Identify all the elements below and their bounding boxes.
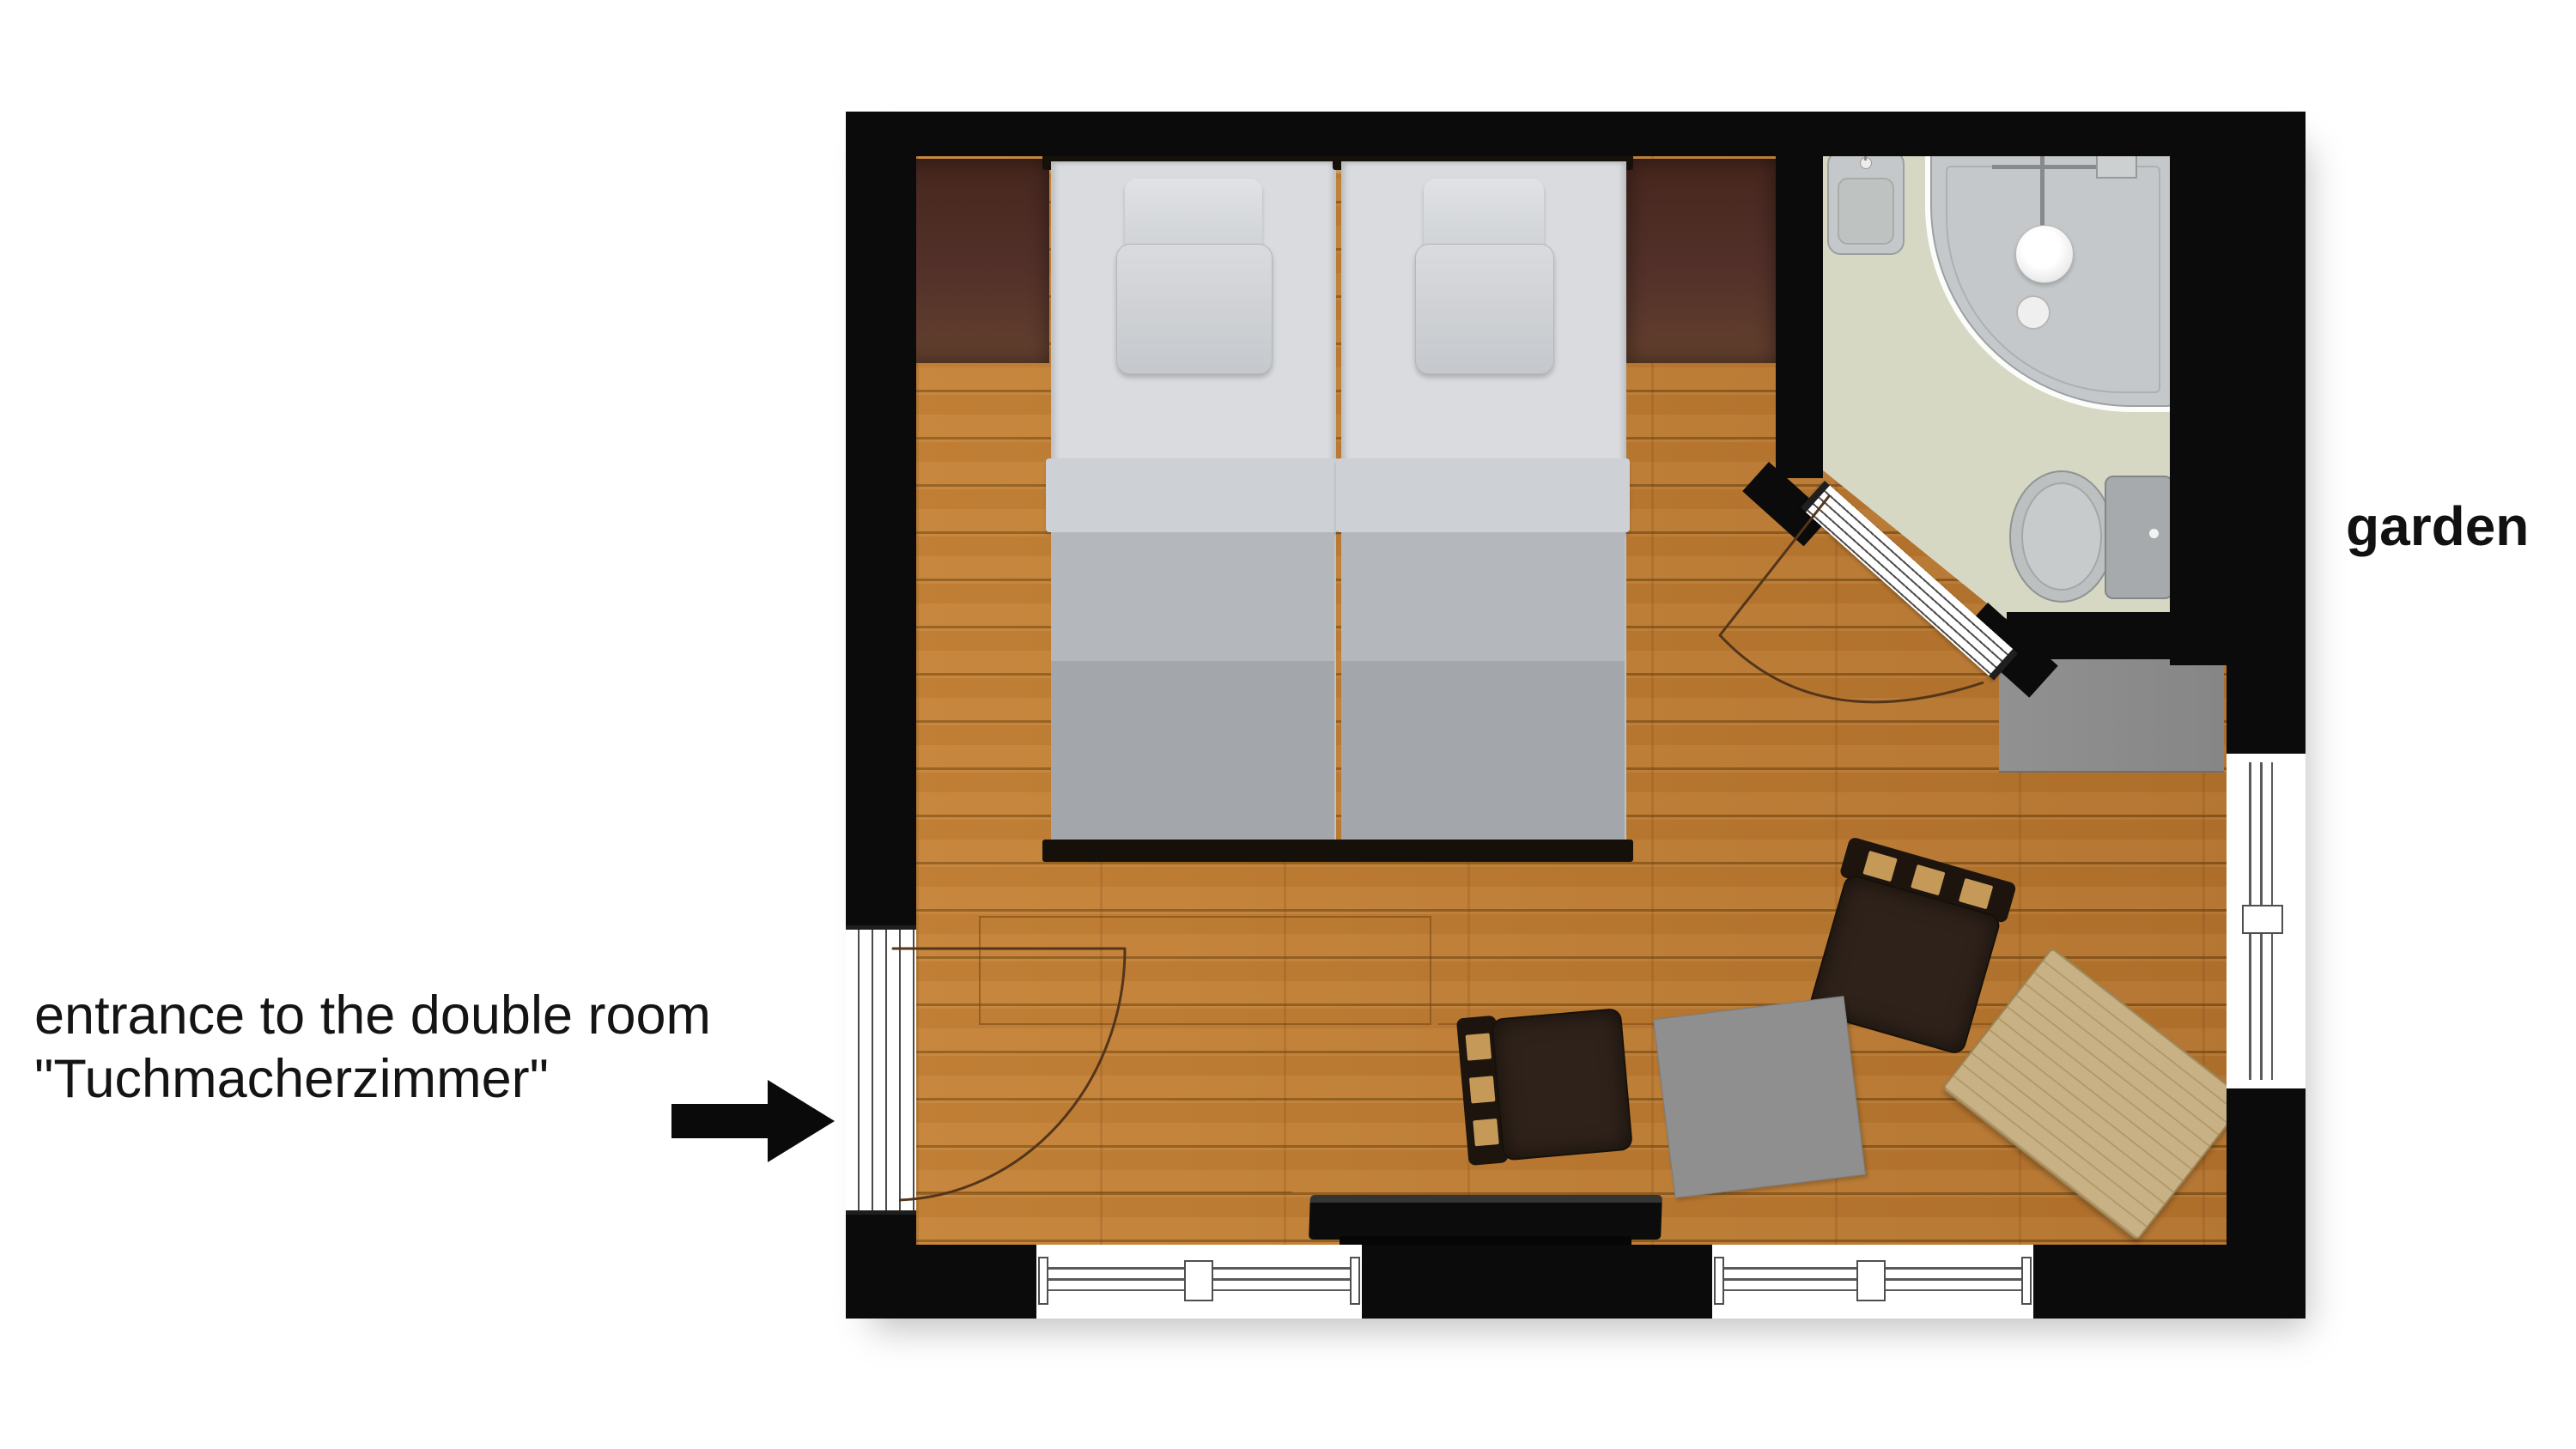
right-arrow-icon xyxy=(671,1078,836,1164)
floor-plan xyxy=(846,112,2306,1319)
floor-plan-screenshot: entrance to the double room "Tuchmacherz… xyxy=(0,0,2576,1449)
garden-label: garden xyxy=(2346,494,2529,558)
door-swing-arcs xyxy=(846,112,2306,1319)
entrance-label-line1: entrance to the double room xyxy=(34,984,876,1047)
